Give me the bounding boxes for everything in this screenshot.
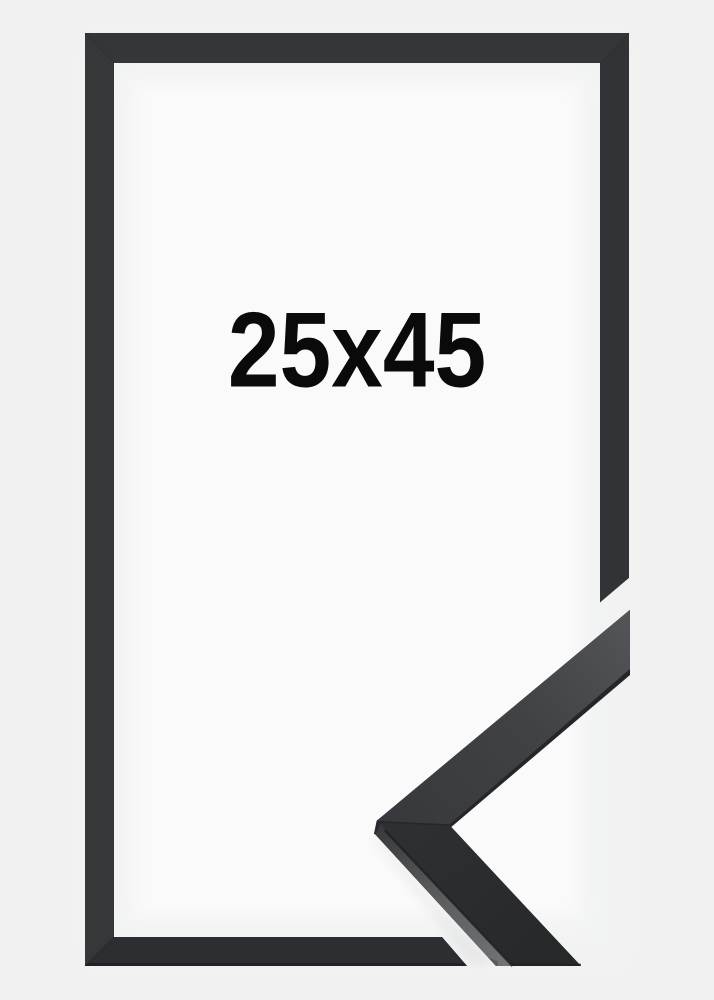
svg-text:25x45: 25x45 <box>228 292 486 410</box>
